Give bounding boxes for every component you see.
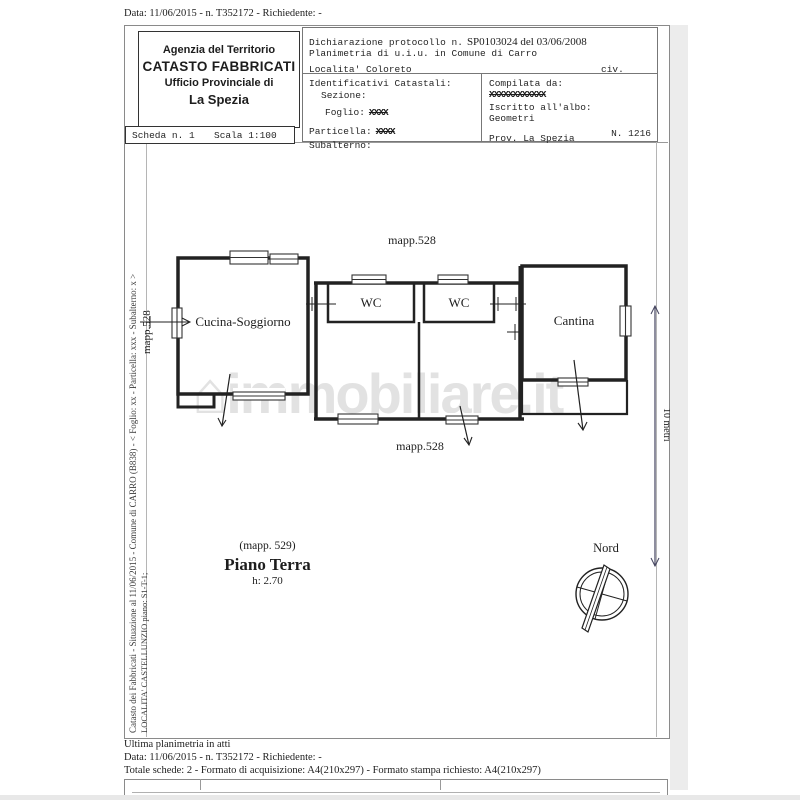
agency-line2: CATASTO FABBRICATI — [139, 59, 299, 74]
declaration-box: Dichiarazione protocollo n. SP0103024 de… — [302, 27, 658, 142]
agency-line4: La Spezia — [139, 92, 299, 107]
particella-row: Particella: XXXX — [309, 121, 452, 139]
walls-cantina — [522, 266, 627, 414]
foglio-value-redacted: XXXX — [369, 107, 388, 118]
floor-plan: mapp.528 mapp.528 mapp.528 — [130, 226, 675, 476]
mapp-label-top: mapp.528 — [388, 233, 436, 247]
walls-kitchen — [178, 258, 308, 407]
identificativi-title: Identificativi Catastali: — [309, 78, 452, 89]
agency-line1: Agenzia del Territorio — [139, 44, 299, 56]
compass-label: Nord — [593, 541, 619, 555]
prov-row: Prov. La Spezia N. 1216 — [489, 128, 653, 146]
mapp-label-left: mapp.528 — [141, 310, 153, 354]
agency-line3: Ufficio Provinciale di — [139, 77, 299, 89]
scanned-cadastral-document: { "top_line": "Data: 11/06/2015 - n. T35… — [0, 0, 800, 800]
document-date-line: Data: 11/06/2015 - n. T352172 - Richiede… — [124, 8, 322, 19]
compass-rose-icon — [576, 565, 628, 632]
declaration-divider-v — [481, 73, 482, 141]
protocol-label: Dichiarazione protocollo n. — [309, 37, 463, 48]
compilata-name-redacted: XXXXXXXXXXXX — [489, 89, 653, 100]
scale-bar-line — [651, 306, 659, 566]
prov-label: Prov. La Spezia — [489, 133, 575, 144]
room-label-wc2: WC — [449, 295, 470, 310]
albo-label: Iscritto all'albo: — [489, 102, 653, 113]
planimetria-line: Planimetria di u.i.u. in Comune di Carro — [309, 48, 537, 59]
foglio-label: Foglio: — [325, 107, 365, 118]
particella-value-redacted: XXXX — [376, 126, 395, 137]
plan-caption: (mapp. 529) Piano Terra h: 2.70 — [180, 540, 355, 587]
next-frame-top-line — [124, 779, 668, 780]
protocol-value: SP0103024 del 03/06/2008 — [467, 36, 587, 48]
declaration-divider-h — [303, 73, 657, 74]
scan-bottom-edge — [0, 795, 800, 800]
compilata-label: Compilata da: — [489, 78, 653, 89]
compilata-section: Compilata da: XXXXXXXXXXXX Iscritto all'… — [489, 78, 653, 146]
scheda-scale: Scala 1:100 — [214, 130, 277, 141]
caption-height: h: 2.70 — [180, 575, 355, 587]
room-label-kitchen: Cucina-Soggiorno — [195, 314, 290, 329]
subalterno-row: Subalterno: — [309, 140, 452, 151]
mapp-label-bottom: mapp.528 — [396, 439, 444, 453]
caption-floor: Piano Terra — [180, 555, 355, 575]
next-frame-tick2 — [440, 779, 441, 790]
scheda-number: Scheda n. 1 — [132, 130, 195, 141]
sezione-row: Sezione: — [309, 90, 452, 101]
walls-middle-block — [314, 266, 524, 419]
foglio-row: Foglio: XXXX — [309, 102, 452, 120]
next-frame-tick1 — [200, 779, 201, 790]
identificativi-section: Identificativi Catastali: Sezione: Fogli… — [309, 78, 452, 151]
albo-number: N. 1216 — [611, 128, 651, 139]
caption-mapp: (mapp. 529) — [180, 540, 355, 552]
albo-value: Geometri — [489, 113, 653, 124]
compass: Nord — [558, 538, 650, 636]
side-annotation-line2: LOCALITA' CASTELLUNZIO piano: S1-T-1; — [139, 573, 149, 733]
particella-label: Particella: — [309, 126, 372, 137]
footer-line1: Ultima planimetria in atti — [124, 739, 230, 750]
scale-bar: 10 metri — [642, 296, 670, 586]
agency-header-box: Agenzia del Territorio CATASTO FABBRICAT… — [138, 31, 300, 128]
door-markers — [218, 360, 588, 445]
footer-line2: Data: 11/06/2015 - n. T352172 - Richiede… — [124, 752, 322, 763]
scale-bar-label: 10 metri — [661, 408, 670, 442]
next-frame-inner-line — [132, 792, 660, 793]
room-label-cantina: Cantina — [554, 313, 595, 328]
room-label-wc1: WC — [361, 295, 382, 310]
scheda-strip: Scheda n. 1 Scala 1:100 — [125, 126, 295, 144]
footer-line3: Totale schede: 2 - Formato di acquisizio… — [124, 765, 541, 776]
